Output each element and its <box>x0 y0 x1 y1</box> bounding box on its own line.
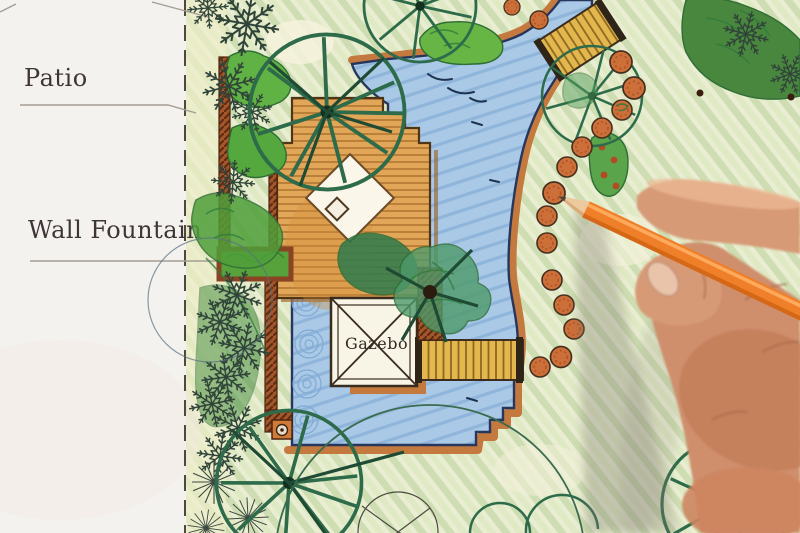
wall-fountain-label: Wall Fountain <box>28 216 202 244</box>
garden-plan-canvas: Patio Wall Fountain Gazebo <box>0 0 800 533</box>
patio-label: Patio <box>24 64 88 92</box>
boardwalk <box>415 337 523 383</box>
pond-light-fixture <box>272 420 292 439</box>
gazebo-label: Gazebo <box>345 334 408 353</box>
garden-plan-photo: Patio Wall Fountain Gazebo <box>0 0 800 533</box>
